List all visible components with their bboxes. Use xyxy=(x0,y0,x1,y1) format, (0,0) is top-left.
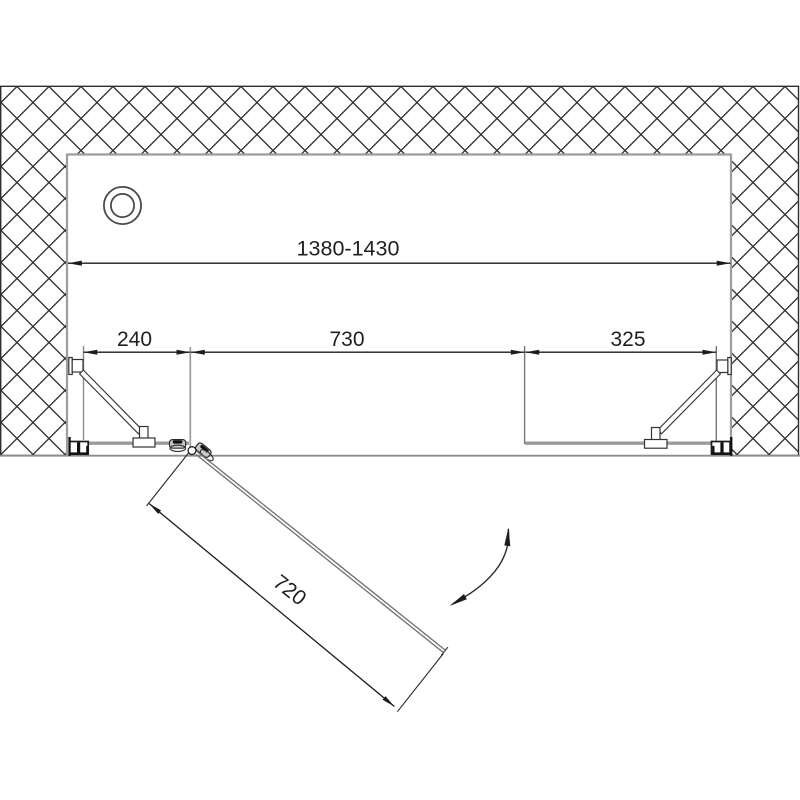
svg-text:720: 720 xyxy=(269,571,311,611)
svg-text:325: 325 xyxy=(610,328,645,351)
svg-text:730: 730 xyxy=(329,328,364,351)
svg-text:240: 240 xyxy=(117,328,152,351)
svg-text:1380-1430: 1380-1430 xyxy=(297,237,400,261)
